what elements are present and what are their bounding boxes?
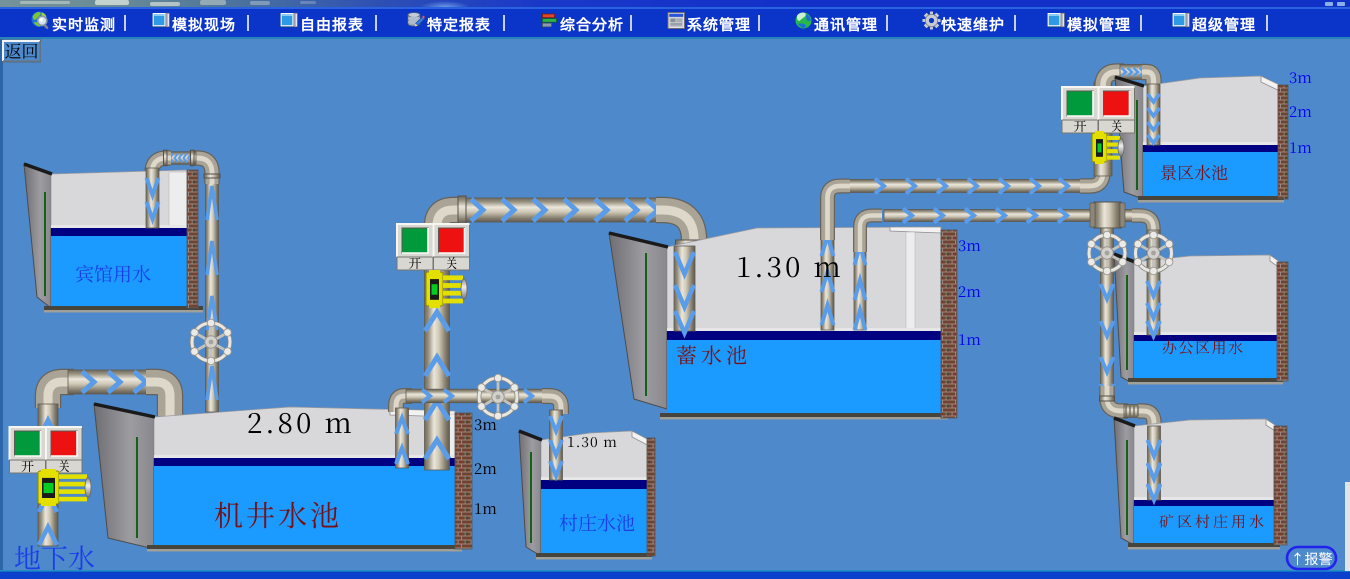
svg-text:开: 开: [408, 253, 421, 272]
svg-text:关: 关: [57, 456, 70, 475]
svg-text:2m: 2m: [958, 281, 981, 302]
svg-text:矿区村庄用水: 矿区村庄用水: [1159, 511, 1267, 532]
svg-text:3m: 3m: [958, 235, 981, 256]
svg-text:返回: 返回: [5, 38, 39, 63]
svg-text:3m: 3m: [1289, 67, 1312, 88]
svg-text:景区水池: 景区水池: [1160, 159, 1228, 184]
svg-text:1m: 1m: [474, 498, 497, 519]
svg-text:蓄水池: 蓄水池: [676, 340, 751, 370]
svg-text:关: 关: [1110, 116, 1123, 135]
svg-text:1.30 m: 1.30 m: [567, 432, 618, 452]
svg-text:开: 开: [1073, 116, 1086, 135]
svg-text:1.30 m: 1.30 m: [736, 246, 844, 286]
svg-text:开: 开: [21, 456, 34, 475]
svg-text:2m: 2m: [474, 458, 497, 479]
svg-text:宾馆用水: 宾馆用水: [75, 260, 151, 287]
svg-text:1m: 1m: [958, 329, 981, 350]
svg-text:办公区用水: 办公区用水: [1162, 337, 1245, 358]
svg-text:关: 关: [445, 253, 458, 272]
svg-text:1m: 1m: [1289, 137, 1312, 158]
svg-text:2.80 m: 2.80 m: [247, 402, 355, 442]
svg-text:↑报警: ↑报警: [1291, 549, 1333, 569]
svg-text:村庄水池: 村庄水池: [559, 509, 635, 536]
svg-text:2m: 2m: [1289, 101, 1312, 122]
svg-text:机井水池: 机井水池: [214, 494, 342, 535]
